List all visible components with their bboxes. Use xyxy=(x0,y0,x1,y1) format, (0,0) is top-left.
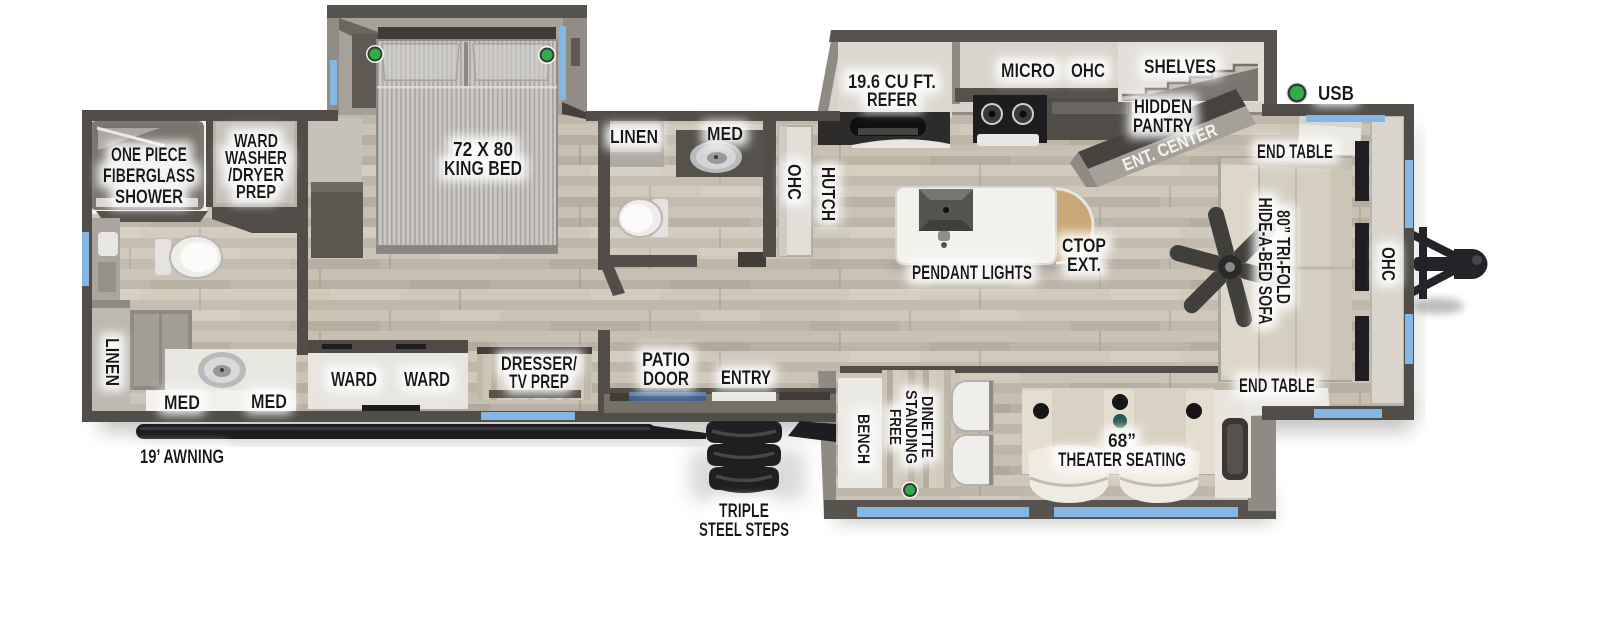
svg-text:MED: MED xyxy=(707,124,743,144)
svg-text:LINEN: LINEN xyxy=(610,127,658,147)
svg-text:EXT.: EXT. xyxy=(1067,255,1101,276)
svg-text:PREP: PREP xyxy=(236,182,276,202)
svg-text:ENTRY: ENTRY xyxy=(721,368,771,389)
svg-text:MED: MED xyxy=(164,393,200,414)
svg-text:OHC: OHC xyxy=(784,164,804,200)
svg-text:BENCH: BENCH xyxy=(854,414,873,464)
svg-text:STEEL STEPS: STEEL STEPS xyxy=(699,520,789,541)
svg-text:68”: 68” xyxy=(1108,431,1136,452)
svg-text:PENDANT LIGHTS: PENDANT LIGHTS xyxy=(912,263,1032,284)
svg-text:ONE PIECE: ONE PIECE xyxy=(111,145,187,166)
svg-text:SHOWER: SHOWER xyxy=(115,187,183,208)
svg-text:LINEN: LINEN xyxy=(102,338,122,386)
svg-text:TV PREP: TV PREP xyxy=(509,372,569,393)
svg-text:DOOR: DOOR xyxy=(643,369,689,390)
svg-text:HIDE-A-BED SOFA: HIDE-A-BED SOFA xyxy=(1255,198,1275,325)
svg-text:STANDING: STANDING xyxy=(902,390,919,464)
svg-text:REFER: REFER xyxy=(867,90,917,111)
svg-text:FIBERGLASS: FIBERGLASS xyxy=(103,166,195,187)
svg-text:END TABLE: END TABLE xyxy=(1239,376,1315,397)
svg-text:FREE: FREE xyxy=(886,409,903,445)
svg-text:WARD: WARD xyxy=(331,369,377,391)
svg-text:WARD: WARD xyxy=(404,369,450,391)
svg-text:HIDDEN: HIDDEN xyxy=(1134,97,1192,118)
svg-text:THEATER SEATING: THEATER SEATING xyxy=(1058,450,1186,471)
svg-text:OHC: OHC xyxy=(1071,61,1105,82)
svg-text:HUTCH: HUTCH xyxy=(818,167,838,221)
svg-text:END TABLE: END TABLE xyxy=(1257,142,1333,163)
svg-text:USB: USB xyxy=(1318,83,1354,105)
svg-text:KING BED: KING BED xyxy=(444,158,522,180)
svg-text:MICRO: MICRO xyxy=(1001,61,1055,82)
svg-text:TRIPLE: TRIPLE xyxy=(719,501,769,522)
svg-text:MED: MED xyxy=(251,392,287,413)
svg-text:PATIO: PATIO xyxy=(642,350,690,371)
svg-text:OHC: OHC xyxy=(1378,247,1398,281)
svg-text:80” TRI-FOLD: 80” TRI-FOLD xyxy=(1273,210,1293,304)
svg-text:SHELVES: SHELVES xyxy=(1144,57,1216,78)
svg-text:19’ AWNING: 19’ AWNING xyxy=(140,447,224,468)
svg-text:CTOP: CTOP xyxy=(1062,236,1106,257)
svg-text:DINETTE: DINETTE xyxy=(918,396,935,458)
